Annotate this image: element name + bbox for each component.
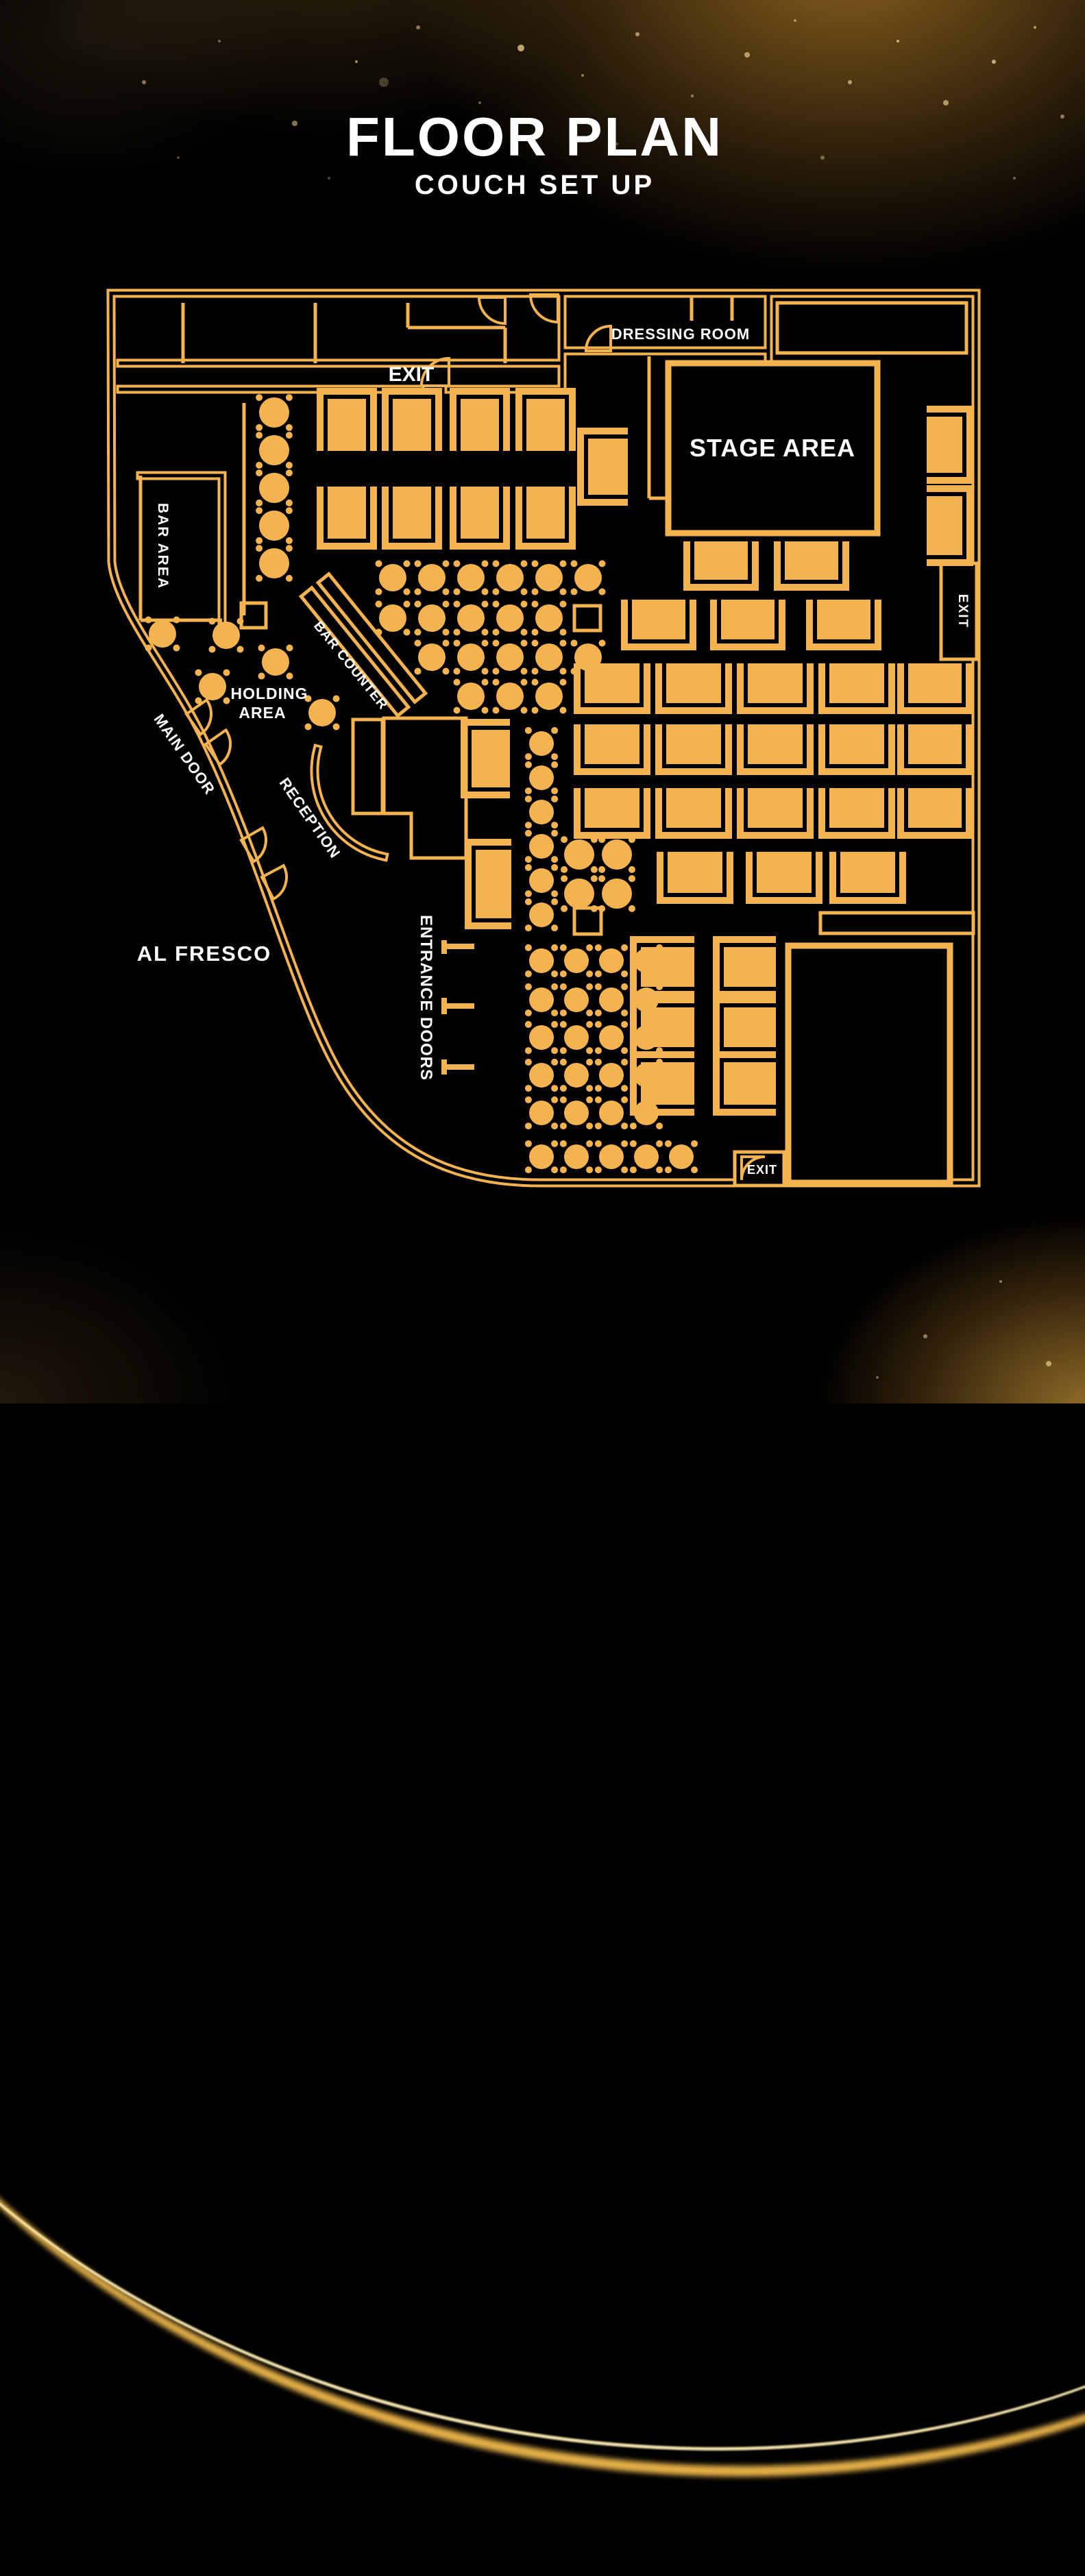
chair-dot [256,432,263,439]
chair-dot [531,560,538,567]
chair-dot [551,983,558,990]
couch-back [713,1051,776,1058]
round-table [457,564,485,591]
round-table [212,622,240,649]
chair-dot [453,629,460,636]
couch-seat [748,724,803,764]
couch-back [774,541,781,591]
round-table [496,604,524,632]
chair-dot [145,616,151,623]
couch-back [816,852,822,904]
chair-dot [551,1166,558,1173]
couch-seat [785,541,838,580]
couch-back [888,724,895,775]
chair-dot [560,1140,567,1147]
chair-dot [521,560,528,567]
chair-dot [525,898,532,905]
couch-back [806,643,881,650]
couch-back [461,719,510,726]
couch-back [897,788,904,839]
couch-back [577,499,628,506]
round-table [199,673,226,700]
chair-dot [630,1166,637,1173]
couch-back [382,388,389,451]
round-table [259,511,289,541]
round-table [496,643,524,671]
chair-dot [453,707,460,714]
chair-dot [595,970,602,977]
exit-right-label: EXIT [955,594,970,628]
chair-dot [560,1021,567,1028]
round-table [457,643,485,671]
couch-back [897,724,904,775]
couch-back [630,1051,637,1116]
couch-back [899,852,906,904]
chair-dot [531,707,538,714]
couch-seat [585,788,639,828]
chair-dot [599,639,606,646]
chair-dot [595,1009,602,1016]
sparkle-dot [478,101,481,104]
couch-back [657,897,733,904]
round-table [418,604,446,632]
chair-dot [595,944,602,951]
chair-dot [414,589,421,596]
round-table [529,868,554,893]
couch-back [752,541,759,591]
round-table [149,620,176,648]
chair-dot [492,639,499,646]
chair-dot [586,1085,593,1092]
chair-dot [560,1059,567,1066]
reception-label: RECEPTION [276,774,344,861]
couch-back [807,788,814,839]
round-table [599,1025,624,1050]
couch-back [897,832,973,839]
couch-back [927,406,973,413]
couch-back [746,852,753,904]
chair-dot [560,560,567,567]
round-table [259,473,289,503]
couch-back [574,768,650,775]
chair-dot [586,1123,593,1129]
chair-dot [286,575,293,582]
chair-dot [560,983,567,990]
couch-back [818,768,895,775]
chair-dot [598,875,605,882]
chair-dot [551,1096,558,1103]
couch-back [370,388,377,451]
chair-dot [630,1123,637,1129]
sparkle-dot [943,100,949,106]
couch-back [630,936,637,998]
chair-dot [443,629,450,636]
chair-dot [286,507,293,514]
couch-back [317,388,377,395]
chair-dot [560,668,567,675]
couch-seat [724,1007,776,1047]
round-table [529,988,554,1012]
chair-dot [586,1096,593,1103]
chair-dot [286,545,293,552]
couch-back [450,388,456,451]
couch-seat [908,724,962,764]
chair-dot [531,629,538,636]
couch-seat [526,487,565,539]
chair-dot [482,639,489,646]
chair-dot [629,866,635,873]
chair-dot [551,1085,558,1092]
chair-dot [691,1166,698,1173]
sparkle-dot [416,25,420,29]
round-table [564,1063,589,1088]
couch-back [888,663,895,714]
couch-seat [328,399,366,451]
chair-dot [525,1166,532,1173]
round-table [529,800,554,824]
chair-dot [586,970,593,977]
couch-back [621,600,628,650]
couch-seat [666,663,721,703]
chair-dot [560,1096,567,1103]
couch-seat [908,788,962,828]
couch-seat [641,947,694,987]
chair-dot [525,796,532,802]
chair-dot [656,1140,663,1147]
dressing-room-label: DRESSING ROOM [611,326,750,343]
chair-dot [551,753,558,760]
couch-back [450,487,456,550]
couch-back [897,707,973,714]
chair-dot [525,1096,532,1103]
chair-dot [551,727,558,734]
round-table [529,1101,554,1125]
sparkle-dot [897,40,899,42]
couch-seat [748,663,803,703]
chair-dot [256,394,263,401]
round-table [418,643,446,671]
round-table [529,1025,554,1050]
round-table [599,1101,624,1125]
chair-dot [525,822,532,829]
chair-dot [258,673,265,680]
chair-dot [595,1085,602,1092]
couch-back [807,663,814,714]
chair-dot [304,724,311,731]
couch-back [713,996,776,1003]
chair-dot [560,1085,567,1092]
chair-dot [560,629,567,636]
sparkle-dot [379,77,389,87]
chair-dot [665,1166,672,1173]
chair-dot [551,890,558,897]
al-fresco-label: AL FRESCO [137,942,272,966]
round-table [599,1063,624,1088]
chair-dot [443,589,450,596]
chair-dot [586,1059,593,1066]
chair-dot [525,1021,532,1028]
chair-dot [586,1166,593,1173]
round-table [535,683,563,710]
chair-dot [333,724,340,731]
couch-back [515,543,576,550]
couch-seat [588,439,628,495]
round-table [529,903,554,927]
chair-dot [286,432,293,439]
square-table [574,908,601,934]
round-table [535,564,563,591]
chair-dot [551,822,558,829]
couch-back [630,1109,694,1116]
chair-dot [492,629,499,636]
chair-dot [521,678,528,685]
chair-dot [586,1009,593,1016]
chair-dot [145,645,151,652]
round-table [564,948,589,973]
couch-back [577,428,584,506]
chair-dot [595,1123,602,1129]
chair-dot [482,589,489,596]
couch-seat [668,852,722,893]
chair-dot [525,1140,532,1147]
chair-dot [286,469,293,476]
couch-back [621,643,696,650]
round-table [602,879,632,909]
couch-back [503,487,510,550]
couch-back [713,1109,776,1116]
chair-dot [531,600,538,607]
holding-area-label-line2: AREA [239,704,286,722]
door-icon [531,295,558,322]
chair-dot [525,727,532,734]
couch-back [725,724,732,775]
buffet-table [820,913,973,933]
couch-back [382,543,442,550]
chair-dot [521,589,528,596]
chair-dot [551,761,558,768]
holding-area-label-line1: HOLDING [230,685,308,702]
couch-seat [927,417,962,473]
sparkle-dot [691,95,694,97]
chair-dot [551,924,558,931]
couch-back [713,996,720,1058]
sparkle-dot [142,80,146,84]
sparkle-dot [177,156,180,159]
couch-back [503,388,510,451]
bar-counter [301,574,425,716]
chair-dot [414,600,421,607]
chair-dot [599,589,606,596]
chair-dot [521,707,528,714]
round-table [535,604,563,632]
couch-seat [632,600,685,639]
sparkle-dot [635,32,639,36]
couch-back [465,922,511,929]
chair-dot [531,639,538,646]
chair-dot [414,668,421,675]
couch-back [382,388,442,395]
chair-dot [560,639,567,646]
round-table [457,683,485,710]
couch-back [630,996,637,1058]
chair-dot [443,600,450,607]
chair-dot [595,983,602,990]
chair-dot [521,639,528,646]
round-table [529,765,554,790]
couch-seat [641,1007,694,1047]
couch-back [382,487,389,550]
couch-back [897,663,904,714]
chair-dot [595,1096,602,1103]
couch-back [713,936,720,998]
sparkle-dot [876,1376,879,1379]
chair-dot [570,589,577,596]
couch-back [927,485,973,492]
chair-dot [256,500,263,506]
couch-back [461,719,467,798]
couch-seat [585,663,639,703]
couch-seat [641,1062,694,1105]
chair-dot [570,639,577,646]
couch-back [818,724,825,775]
reception-desk [353,720,382,813]
chair-dot [570,560,577,567]
chair-dot [333,695,340,702]
chair-dot [531,668,538,675]
chair-dot [453,589,460,596]
couch-back [737,788,744,839]
chair-dot [525,1059,532,1066]
chair-dot [525,787,532,794]
couch-back [655,768,732,775]
sparkle-dot [581,74,584,77]
chair-dot [375,600,382,607]
chair-dot [521,668,528,675]
couch-back [450,543,510,550]
chair-dot [525,890,532,897]
couch-back [569,388,576,451]
couch-seat [461,487,499,539]
couch-back [515,388,522,451]
chair-dot [173,616,180,623]
sparkle-dot [328,177,330,180]
chair-dot [525,983,532,990]
sparkle-dot [794,19,796,22]
chair-dot [453,678,460,685]
chair-dot [482,678,489,685]
floor-plan-diagram: EXIT DRESSING ROOM STAGE AREA BAR AREA B… [0,0,1085,1403]
chair-dot [223,698,230,704]
couch-back [746,897,822,904]
chair-dot [560,1009,567,1016]
chair-dot [560,1166,567,1173]
sparkle-dot [1034,26,1036,29]
chair-dot [560,1123,567,1129]
sparkle-dot [615,143,618,145]
round-table [602,839,632,870]
round-table [308,699,336,726]
sparkle-dot [218,40,221,42]
top-right-room [777,303,966,353]
round-table [564,1101,589,1125]
couch-back [966,663,973,714]
chair-dot [521,629,528,636]
chair-dot [560,970,567,977]
chair-dot [560,944,567,951]
chair-dot [375,589,382,596]
couch-back [574,663,581,714]
chair-dot [629,905,635,912]
chair-dot [551,1059,558,1066]
chair-dot [256,424,263,431]
couch-back [630,936,694,943]
couch-back [710,643,785,650]
bar-counter-left-edge [141,476,222,620]
chair-dot [525,856,532,863]
chair-dot [551,830,558,837]
chair-dot [482,600,489,607]
couch-seat [694,541,748,580]
round-table [599,1144,624,1169]
couch-back [465,839,472,929]
couch-back [725,663,732,714]
chair-dot [443,560,450,567]
chair-dot [453,639,460,646]
chair-dot [595,1047,602,1054]
couch-seat [461,399,499,451]
chair-dot [208,646,215,653]
chair-dot [621,1140,628,1147]
chair-dot [560,600,567,607]
round-table [535,643,563,671]
chair-dot [586,1021,593,1028]
stage-area-label: STAGE AREA [690,434,855,462]
chair-dot [621,1085,628,1092]
couch-back [725,788,732,839]
chair-dot [525,1009,532,1016]
sparkle-dot [999,1280,1002,1283]
couch-back [683,584,759,591]
couch-seat [721,600,775,639]
chair-dot [404,600,411,607]
couch-seat [927,496,962,555]
couch-seat [328,487,366,539]
chair-dot [531,678,538,685]
chair-dot [256,545,263,552]
couch-back [683,541,690,591]
exit-top-label: EXIT [389,363,435,386]
round-table [259,435,289,465]
chair-dot [595,1140,602,1147]
chair-dot [453,560,460,567]
couch-back [966,788,973,839]
chair-dot [286,500,293,506]
stage-nook-wall [649,356,667,498]
couch-back [818,663,825,714]
chair-dot [492,707,499,714]
chair-dot [560,707,567,714]
round-table [529,1063,554,1088]
chair-dot [621,983,628,990]
chair-dot [551,864,558,871]
chair-dot [195,669,202,676]
chair-dot [525,753,532,760]
chair-dot [173,645,180,652]
round-table [379,604,406,632]
sparkle-dot [848,80,852,84]
couch-back [574,724,581,775]
chair-dot [492,589,499,596]
